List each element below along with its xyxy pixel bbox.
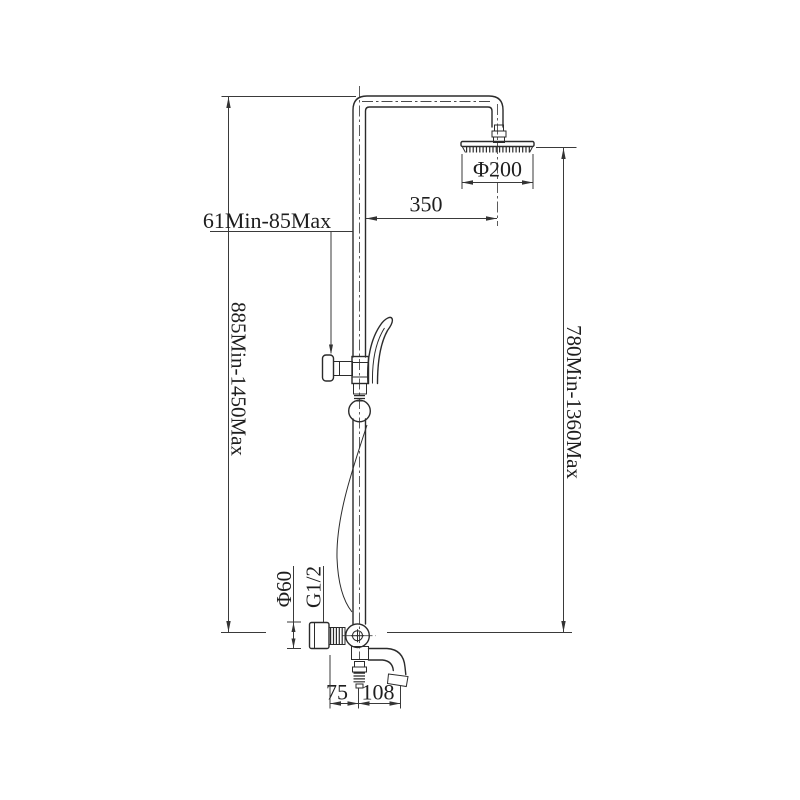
head-connector-nut bbox=[492, 125, 506, 143]
hand-shower-body bbox=[368, 317, 393, 383]
outlet-nut bbox=[353, 667, 367, 672]
label-head-height: 780Min-1360Max bbox=[562, 325, 586, 479]
label-head-diameter: Φ200 bbox=[473, 157, 522, 182]
arrowhead-up bbox=[561, 148, 565, 159]
dim-thread-size: G1/2 bbox=[302, 566, 326, 622]
arrowhead-right bbox=[390, 701, 401, 705]
valve-handle bbox=[310, 623, 330, 649]
holder-knob-stem bbox=[334, 362, 353, 376]
slider-holder bbox=[323, 355, 369, 384]
arrowhead-right bbox=[486, 216, 497, 220]
dim-handle-diameter: Φ60 bbox=[272, 566, 301, 649]
arrowhead-up bbox=[292, 623, 296, 633]
riser-pipe-upper bbox=[353, 96, 503, 357]
mixer-valve bbox=[310, 623, 370, 649]
hose-connector bbox=[354, 384, 367, 402]
outlet-neck bbox=[355, 662, 365, 668]
arrowhead-right bbox=[522, 180, 533, 184]
shower-technical-drawing: 885Min-1450Max 780Min-1360Max 61Min-85Ma… bbox=[0, 0, 800, 800]
dim-head-offset: 350 bbox=[366, 192, 497, 221]
label-handle-diameter: Φ60 bbox=[272, 571, 296, 607]
arrowhead-down bbox=[329, 345, 333, 355]
dim-holder-range: 61Min-85Max bbox=[203, 208, 353, 355]
dimensions: 885Min-1450Max 780Min-1360Max 61Min-85Ma… bbox=[203, 97, 586, 709]
arrowhead-left bbox=[366, 216, 377, 220]
spout-bottom-edge bbox=[369, 660, 394, 671]
nut-middle bbox=[492, 131, 506, 137]
arrowhead-up bbox=[226, 97, 230, 108]
label-thread-size: G1/2 bbox=[302, 566, 326, 608]
nut-top bbox=[495, 125, 504, 131]
arrowhead-down bbox=[226, 621, 230, 632]
product-outline bbox=[310, 96, 535, 688]
label-head-offset: 350 bbox=[410, 192, 443, 217]
hand-shower bbox=[368, 317, 393, 383]
holder-knob-flange bbox=[323, 355, 334, 381]
technical-drawing-page: 885Min-1450Max 780Min-1360Max 61Min-85Ma… bbox=[0, 0, 800, 800]
holder-block bbox=[352, 357, 369, 384]
dim-overall-height: 885Min-1450Max bbox=[221, 97, 356, 633]
arrowhead-down bbox=[561, 621, 565, 632]
label-holder-range: 61Min-85Max bbox=[203, 208, 331, 233]
connector-body bbox=[354, 384, 367, 395]
head-end-right bbox=[530, 147, 533, 153]
arrowhead-center-right bbox=[348, 701, 359, 705]
spout-base bbox=[352, 647, 369, 660]
hand-shower-hose bbox=[337, 425, 367, 612]
head-end-left bbox=[463, 147, 466, 153]
label-dim-reach: 108 bbox=[362, 680, 395, 705]
label-dim-left: 75 bbox=[326, 680, 348, 705]
arrowhead-down bbox=[292, 639, 296, 649]
label-overall-height: 885Min-1450Max bbox=[227, 302, 251, 456]
arrowhead-left bbox=[462, 180, 473, 184]
